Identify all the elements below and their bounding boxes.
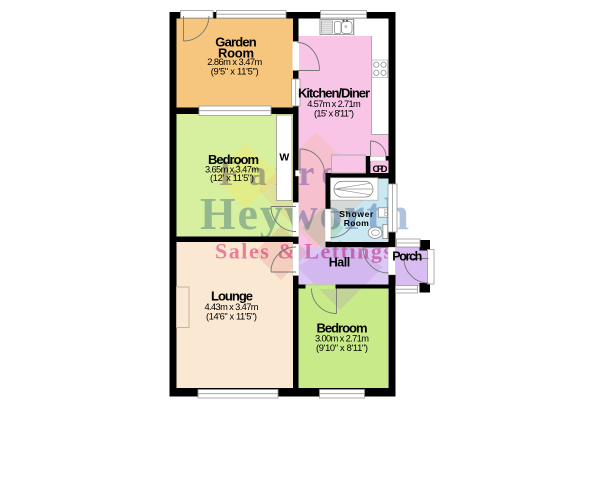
svg-text:Hall: Hall (329, 256, 351, 270)
svg-text:W: W (279, 152, 289, 164)
svg-text:4.43m x 3.47m: 4.43m x 3.47m (205, 302, 259, 312)
svg-text:CPD: CPD (373, 164, 388, 175)
svg-text:Room: Room (344, 218, 369, 228)
svg-text:Porch: Porch (392, 250, 422, 264)
svg-text:(9'5" x 11'5"): (9'5" x 11'5") (211, 67, 259, 77)
svg-text:(12' x 11'5"): (12' x 11'5") (210, 173, 254, 183)
svg-text:3.00m x 2.71m: 3.00m x 2.71m (315, 334, 369, 344)
svg-text:(15' x 8'11"): (15' x 8'11") (314, 109, 354, 119)
svg-text:4.57m x 2.71m: 4.57m x 2.71m (307, 99, 361, 109)
svg-text:2.86m x 3.47m: 2.86m x 3.47m (207, 57, 262, 67)
svg-text:(14'6" x 11'5"): (14'6" x 11'5") (206, 312, 257, 322)
svg-text:(9'10" x 8'11"): (9'10" x 8'11") (316, 343, 368, 353)
